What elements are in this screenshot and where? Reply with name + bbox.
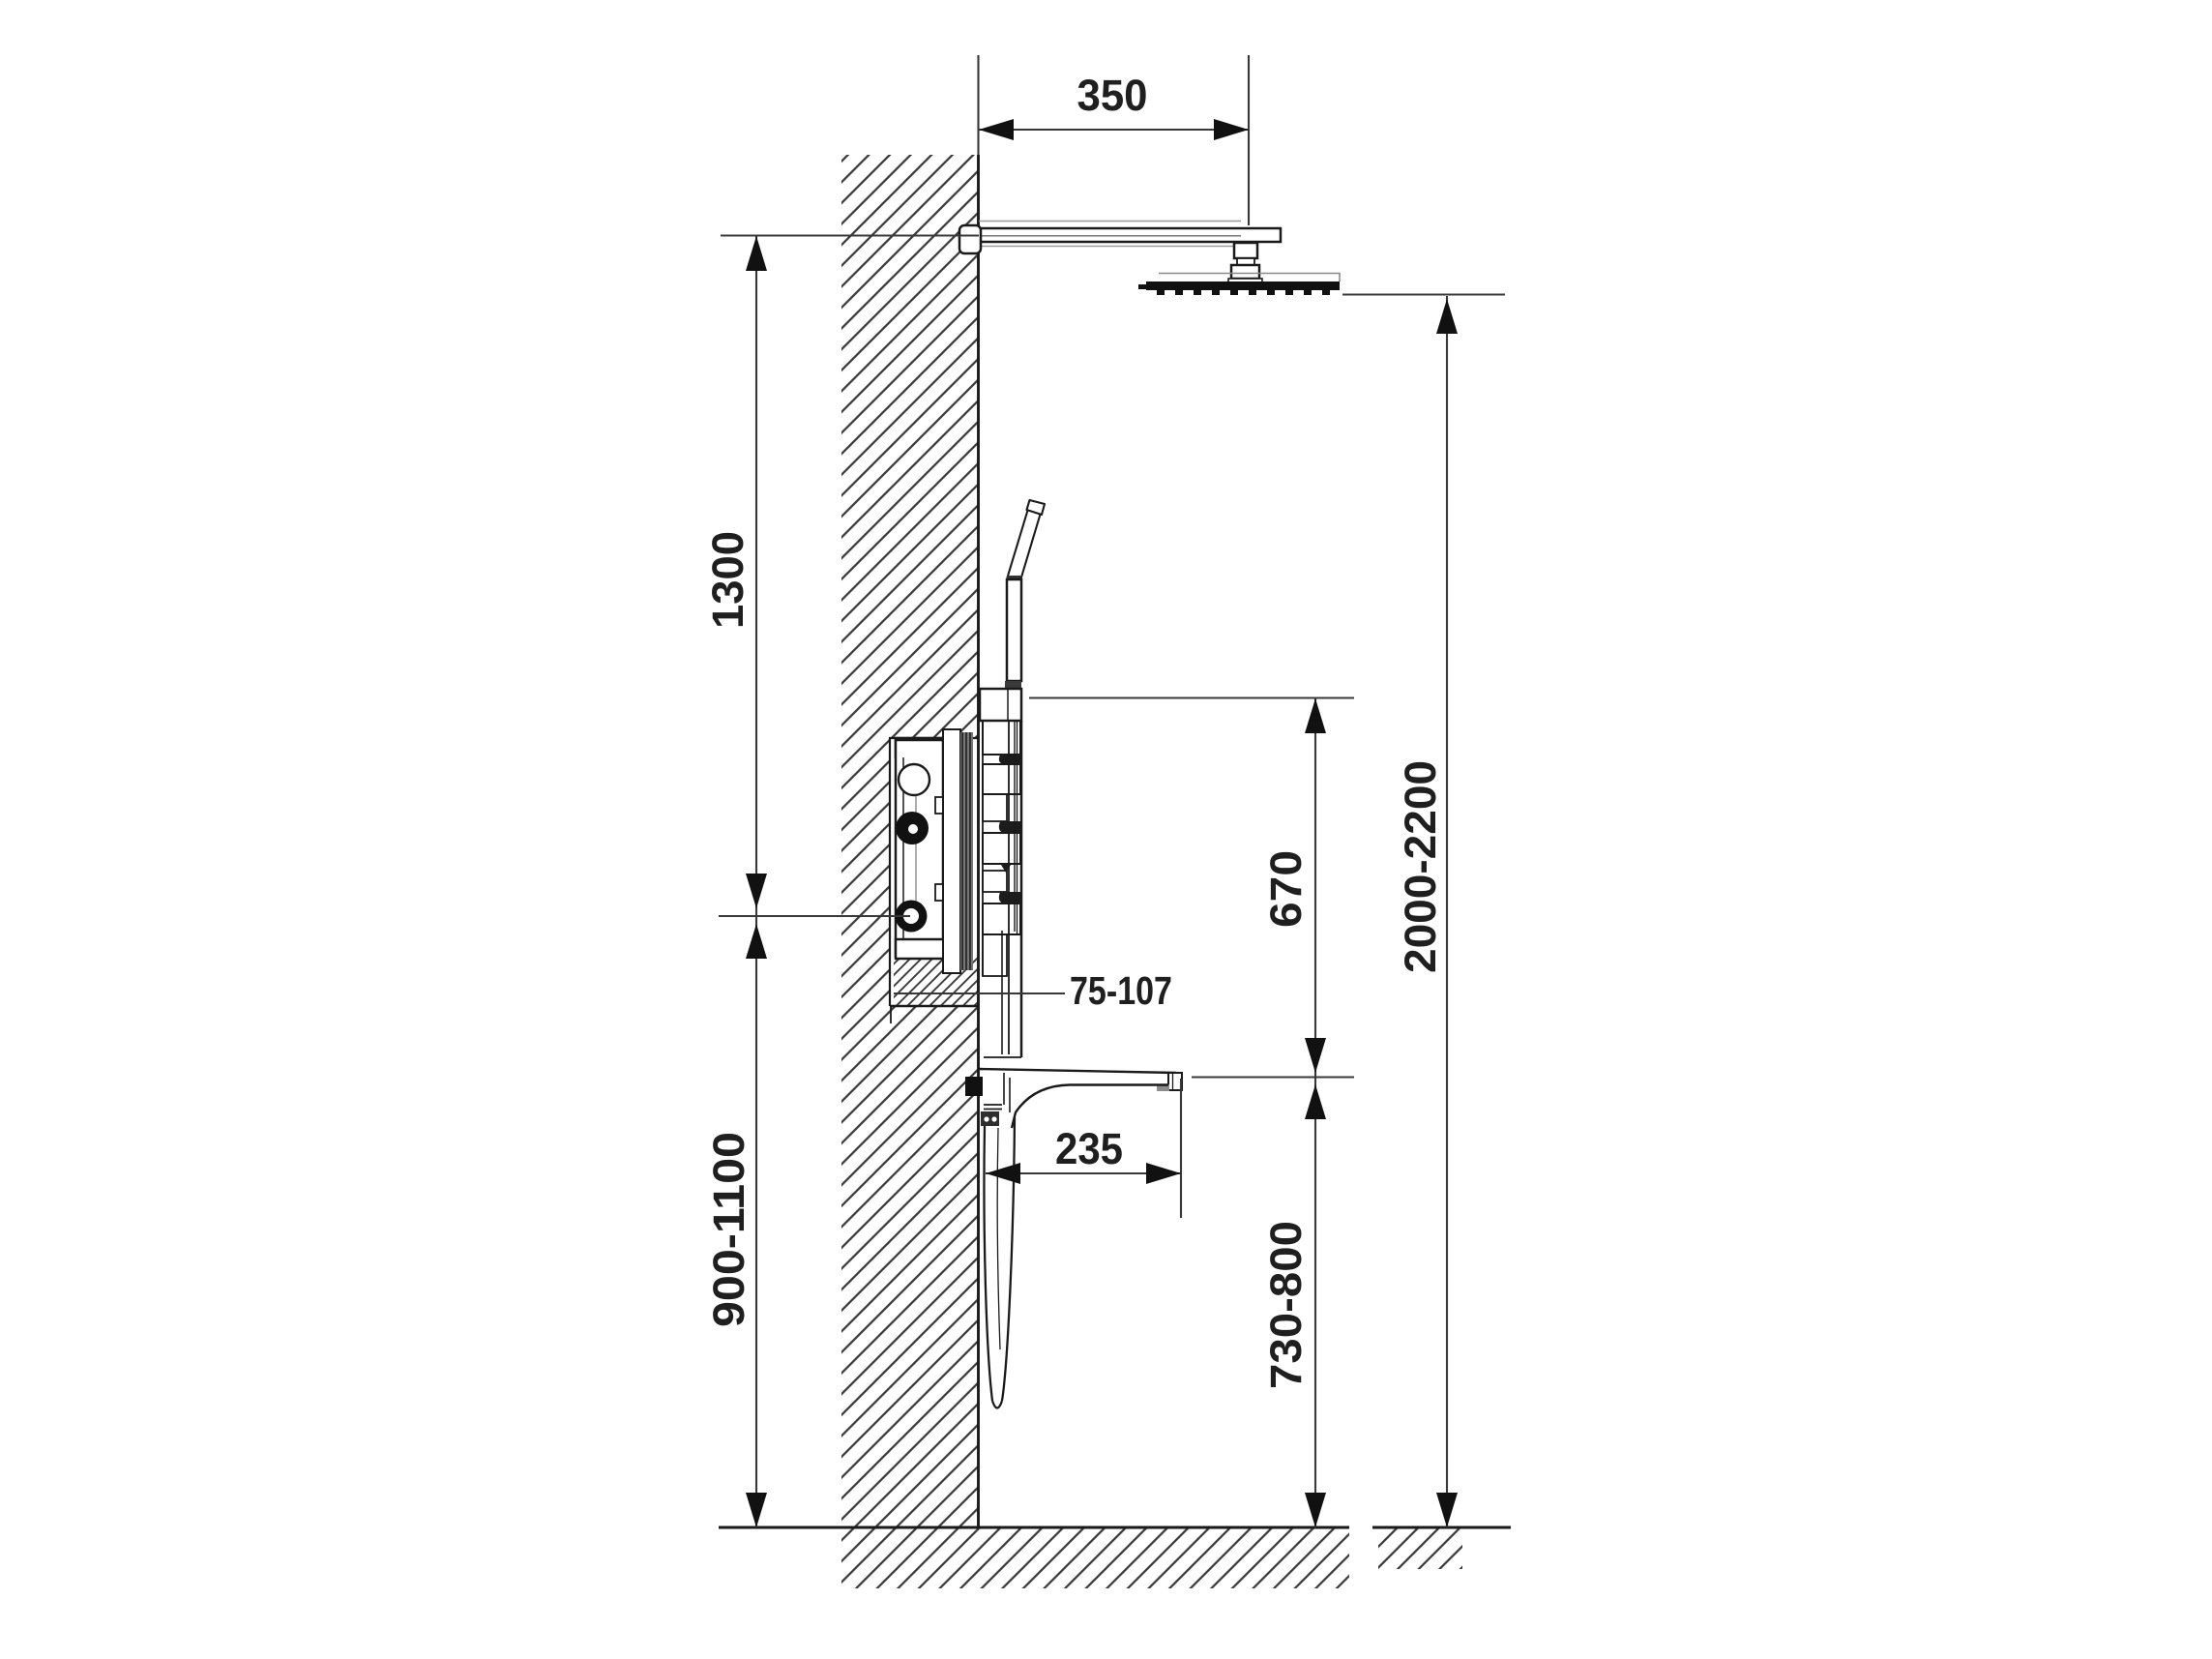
svg-text:235: 235 — [1055, 1124, 1123, 1173]
svg-text:350: 350 — [1077, 71, 1148, 120]
svg-text:900-1100: 900-1100 — [704, 1132, 753, 1327]
svg-text:730-800: 730-800 — [1261, 1221, 1311, 1389]
svg-text:2000-2200: 2000-2200 — [1396, 760, 1445, 973]
svg-text:1300: 1300 — [703, 531, 752, 629]
svg-text:75-107: 75-107 — [1070, 968, 1172, 1013]
svg-text:670: 670 — [1261, 850, 1311, 928]
